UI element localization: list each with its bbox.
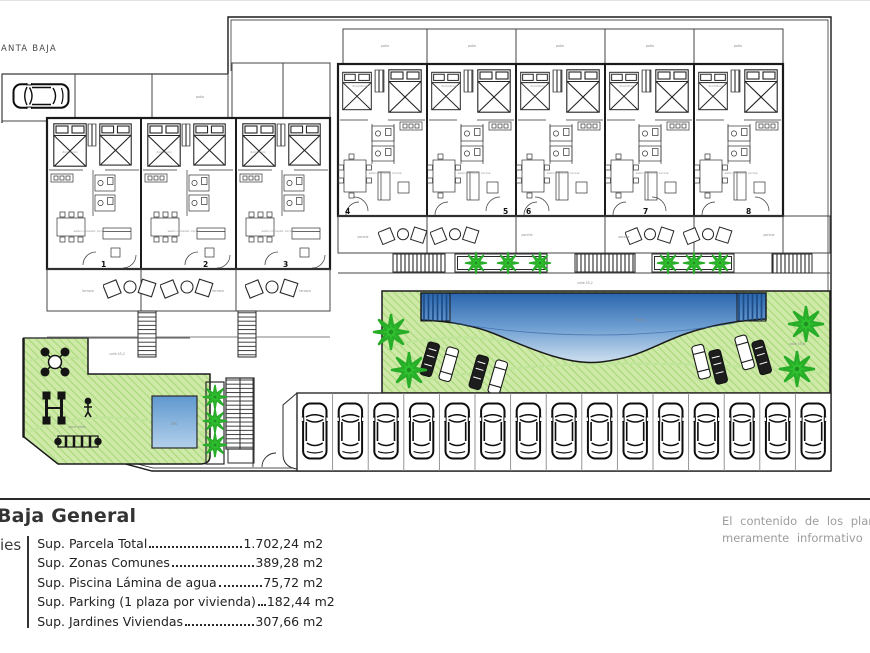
svg-text:zona niños: zona niños <box>68 425 85 429</box>
legend-divider <box>27 536 29 628</box>
terrace-chairs <box>103 279 156 298</box>
table-row: Sup. Zonas Comunes389,28 m2 <box>37 555 323 574</box>
svg-text:dormitorio: dormitorio <box>156 150 172 154</box>
table-row: Sup. Piscina Lámina de agua75,72 m2 <box>37 575 323 594</box>
plan-title: ANTA BAJA <box>1 44 57 54</box>
table-row: Sup. Parcela Total1.702,24 m2 <box>37 536 323 555</box>
svg-text:porche: porche <box>764 233 775 237</box>
svg-text:dormitorio: dormitorio <box>352 84 368 88</box>
table-row: Sup. Parking (1 plaza por vivienda)182,4… <box>37 594 323 613</box>
terrace-chairs <box>245 279 298 298</box>
svg-text:salón comedor cocina: salón comedor cocina <box>168 229 201 233</box>
svg-text:Piscina: Piscina <box>634 318 645 322</box>
terrace-chairs <box>430 227 479 244</box>
table-row: Sup. Jardines Viviendas307,66 m2 <box>37 614 323 633</box>
terrace-chairs <box>683 227 732 244</box>
svg-text:patio: patio <box>556 44 564 48</box>
block-a <box>47 118 330 269</box>
svg-text:salón comedor cocina: salón comedor cocina <box>74 229 107 233</box>
parked-cars <box>301 404 827 459</box>
parking-row <box>283 393 831 471</box>
svg-text:terraza: terraza <box>299 289 310 293</box>
planter-palms-left <box>203 385 226 456</box>
svg-text:SPA: SPA <box>171 422 178 426</box>
svg-text:calle 45,6: calle 45,6 <box>789 342 805 346</box>
svg-text:patio: patio <box>468 44 476 48</box>
svg-text:patio: patio <box>196 95 204 99</box>
svg-text:porche: porche <box>358 235 369 239</box>
pool-steps-right <box>737 293 766 321</box>
sheet-title: Baja General <box>0 505 136 527</box>
pool-steps-left <box>421 293 450 321</box>
svg-text:patio: patio <box>646 44 654 48</box>
terrace-chairs <box>160 279 213 298</box>
svg-text:calle 45,2: calle 45,2 <box>577 281 593 285</box>
unit-number-6: 6 <box>526 207 531 216</box>
surface-table: Sup. Parcela Total1.702,24 m2 Sup. Zonas… <box>37 536 323 633</box>
svg-text:dormitorio: dormitorio <box>530 84 546 88</box>
svg-text:dormitorio: dormitorio <box>62 150 78 154</box>
svg-text:dormitorio: dormitorio <box>441 84 457 88</box>
stairs-and-planters <box>393 254 812 273</box>
svg-text:terraza: terraza <box>82 289 93 293</box>
unit-number-8: 8 <box>746 207 751 216</box>
unit-number-4: 4 <box>345 207 350 216</box>
unit-number-2: 2 <box>203 260 208 269</box>
superficies-label: ies <box>0 536 21 553</box>
site-plan: ANTA BAJA <box>0 1 870 498</box>
svg-text:salón comedor cocina: salón comedor cocina <box>725 171 758 175</box>
disclaimer-text: El contenido de los planos meramente inf… <box>722 513 870 547</box>
svg-text:porche: porche <box>522 233 533 237</box>
svg-text:salón comedor cocina: salón comedor cocina <box>369 171 402 175</box>
stairs-left-block <box>47 311 330 357</box>
svg-text:dormitorio: dormitorio <box>250 150 266 154</box>
svg-text:porche: porche <box>619 235 630 239</box>
unit-number-7: 7 <box>643 207 648 216</box>
patio-strip-left <box>232 63 330 118</box>
svg-text:dormitorio: dormitorio <box>619 84 635 88</box>
svg-text:salón comedor cocina: salón comedor cocina <box>547 171 580 175</box>
svg-text:patio: patio <box>381 44 389 48</box>
terrace-chairs <box>378 227 427 244</box>
svg-text:dormitorio: dormitorio <box>708 84 724 88</box>
floor-plan-sheet: ANTA BAJA <box>0 0 870 653</box>
svg-text:salón comedor cocina: salón comedor cocina <box>458 171 491 175</box>
terrace-chairs <box>625 227 674 244</box>
title-block: Baja General ies Sup. Parcela Total1.702… <box>0 498 870 653</box>
parked-car-top <box>14 82 69 109</box>
svg-text:salón comedor cocina: salón comedor cocina <box>262 229 295 233</box>
svg-text:salón comedor cocina: salón comedor cocina <box>636 171 669 175</box>
unit-number-5: 5 <box>503 207 508 216</box>
unit-number-3: 3 <box>283 260 288 269</box>
svg-text:patio: patio <box>734 44 742 48</box>
unit-number-1: 1 <box>101 260 106 269</box>
svg-text:terraza: terraza <box>212 289 223 293</box>
svg-text:calle 45,2: calle 45,2 <box>109 352 125 356</box>
